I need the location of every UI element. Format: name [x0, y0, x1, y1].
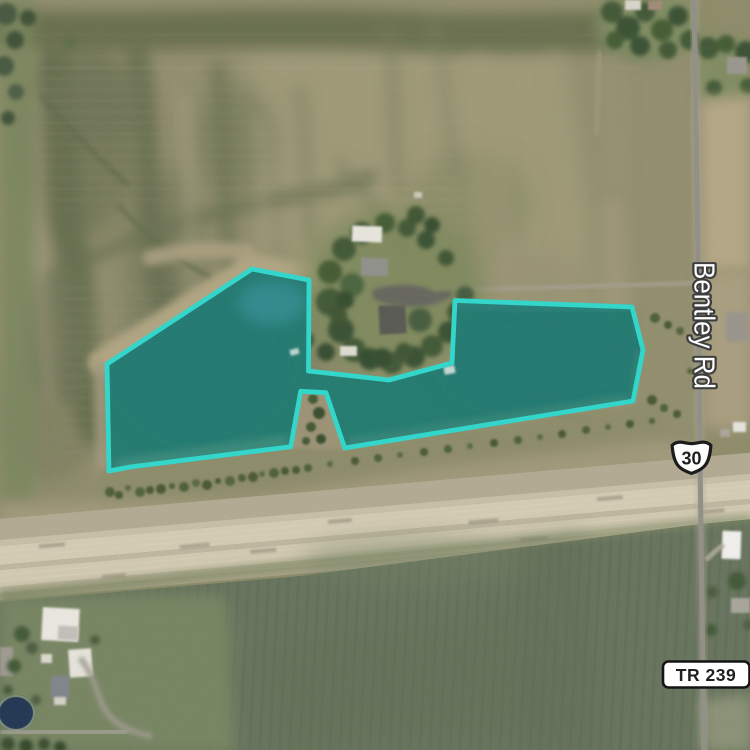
- svg-text:30: 30: [681, 448, 701, 468]
- svg-text:Bentley Rd: Bentley Rd: [688, 262, 720, 389]
- svg-text:TR 239: TR 239: [676, 665, 736, 685]
